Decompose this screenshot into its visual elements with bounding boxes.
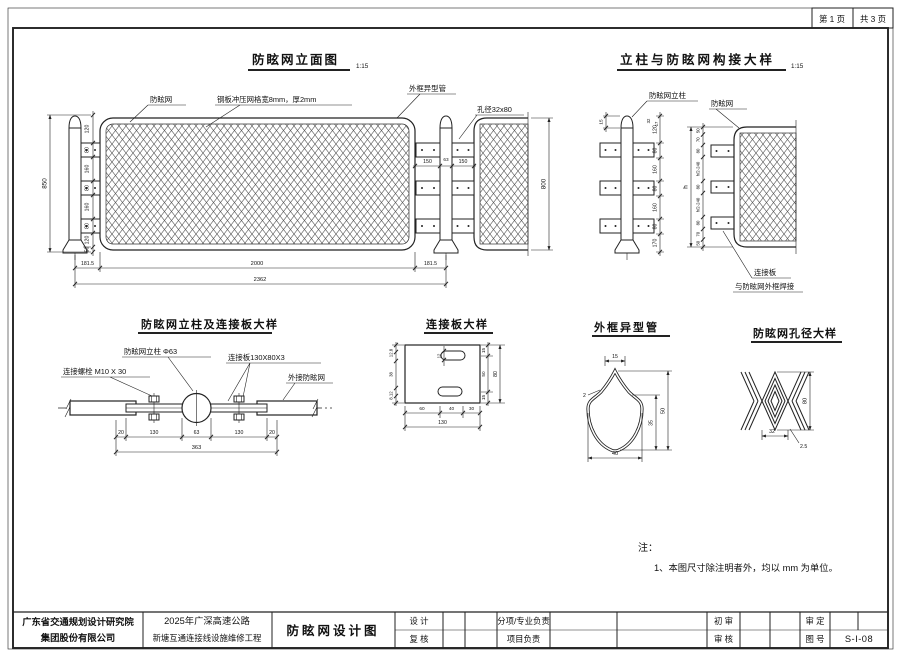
- dim-label: 80: [85, 185, 91, 191]
- aperture-label: 孔径32x80: [477, 105, 512, 114]
- dim-label: 20: [118, 430, 124, 436]
- mesh-spec-label: 钢板冲压网格宽8mm，厚2mm: [217, 95, 316, 104]
- view-scale: 1:15: [791, 63, 804, 70]
- dim-label: 170: [653, 239, 659, 248]
- dim-label: 60: [419, 406, 425, 411]
- leader-line: [397, 94, 456, 118]
- dim-label: 40: [449, 406, 455, 411]
- dim-label: 20: [269, 430, 275, 436]
- joint-detail-view: 立柱与防眩网构接大样 1:15 防眩网立柱 防眩网 15 32 17 120 8…: [599, 52, 804, 292]
- dim-label: 12.8: [389, 348, 394, 357]
- project-lead-label: 项目负责: [507, 634, 541, 644]
- dim-label: 80: [493, 371, 499, 377]
- title-block: 广东省交通规划设计研究院 集团股份有限公司 2025年广深高速公路 新塘互通连接…: [13, 612, 888, 648]
- dim-label: 80: [803, 398, 809, 404]
- dim-label: h: [683, 185, 690, 189]
- dim-label: 50: [481, 371, 486, 377]
- dim-label: 160: [653, 203, 659, 212]
- extension-lines: [762, 430, 788, 440]
- leader-line: [226, 363, 321, 401]
- frame-tube-label: 外框异型管: [409, 84, 446, 93]
- check-label: 复 核: [409, 634, 429, 644]
- leader-line: [632, 101, 698, 117]
- brackets: [600, 143, 734, 233]
- leader-line: [709, 109, 747, 128]
- dim-label: 2362: [254, 277, 267, 283]
- dim-label: 50: [696, 128, 701, 133]
- dim-label: 2: [583, 393, 586, 399]
- dim-label: 15: [481, 395, 486, 401]
- bottom-dims: 60 40 30 130: [403, 406, 482, 431]
- net-label: 防眩网: [150, 95, 172, 104]
- net-panel-mesh: [106, 124, 409, 244]
- dim-label: h/2-240: [696, 197, 701, 212]
- dim-label: 50: [696, 240, 701, 245]
- dim-label: 80: [696, 148, 701, 153]
- drawing-number: S-I-08: [845, 634, 873, 644]
- dim-label: 120: [653, 125, 659, 134]
- dim-label: 130: [438, 420, 447, 426]
- plate-detail-view: 连接板大样 12 15 50 15 80 12.8 38 8.12 60 40 …: [389, 317, 506, 431]
- tube-section-outline: [588, 371, 642, 451]
- drawing-no-label: 图 号: [805, 634, 824, 644]
- dim-label: 32: [646, 118, 651, 123]
- leader-line: [283, 383, 333, 400]
- dim-label: 80: [85, 223, 91, 229]
- tube-detail-view: 外框异型管 15 2 50 35 40: [583, 320, 672, 462]
- dim-label: 130: [150, 430, 159, 436]
- dim-label: 15: [481, 348, 486, 354]
- dim-label: 160: [85, 203, 91, 212]
- dim-label: 15: [612, 354, 618, 360]
- left-dims: 12.8 38 8.12: [389, 342, 405, 406]
- discipline-lead-label: 分项/专业负责: [497, 616, 550, 626]
- dim-label: 80: [653, 148, 659, 154]
- cad-canvas: 第 1 页 共 3 页 防眩网立面图 1:15 防眩网 钢板冲压网格宽8mm，厚…: [0, 0, 900, 656]
- cap-dim: 15: [599, 112, 621, 132]
- leader-line: [130, 105, 186, 122]
- mesh-motif: [741, 372, 809, 430]
- dim-label: 70: [696, 137, 701, 142]
- post-label: 防眩网立柱: [649, 91, 687, 100]
- leader-line: [790, 429, 799, 443]
- dim-label: 2000: [251, 261, 264, 267]
- company-name-line2: 集团股份有限公司: [40, 632, 115, 643]
- dim-label: 32: [769, 429, 775, 435]
- view-title: 外框异型管: [593, 320, 659, 334]
- dim-label: 80: [85, 147, 91, 153]
- bolt-label: 连接螺栓 M10 X 30: [63, 367, 126, 376]
- dim-label: 181.5: [424, 261, 437, 267]
- dim-label: 70: [696, 231, 701, 236]
- net-label: 防眩网: [711, 99, 733, 108]
- view-title: 防眩网立柱及连接板大样: [141, 317, 279, 331]
- panel-height-dim: 800: [531, 118, 553, 250]
- page-number: 第 1 页: [819, 14, 845, 24]
- dim-label: 800: [541, 178, 548, 189]
- dim-label: 130: [235, 430, 244, 436]
- dim-label: 181.5: [81, 261, 94, 267]
- design-label: 设 计: [409, 616, 429, 626]
- approval-label: 审 定: [805, 616, 825, 626]
- view-title: 防眩网孔径大样: [753, 326, 837, 340]
- dim-label: 80: [653, 224, 659, 230]
- dim-label: 120: [85, 125, 91, 134]
- elevation-view: 防眩网立面图 1:15 防眩网 钢板冲压网格宽8mm，厚2mm 外框异型管 孔径…: [42, 52, 554, 288]
- net-panel2-mesh: [480, 124, 528, 244]
- dim-label: 50: [661, 408, 667, 414]
- net-label: 外接防眩网: [288, 373, 325, 382]
- dim-label: 120: [85, 236, 91, 245]
- page-number-box: 第 1 页 共 3 页: [812, 8, 893, 28]
- notes: 注： 1、本图尺寸除注明者外，均以 mm 为单位。: [638, 541, 838, 573]
- review-label: 审 核: [714, 634, 734, 644]
- company-name-line1: 广东省交通规划设计研究院: [22, 616, 134, 627]
- weld-label: 与防眩网外框焊接: [735, 282, 795, 291]
- aperture-detail-view: 防眩网孔径大样 80 32 2.5: [741, 326, 842, 450]
- note-item: 1、本图尺寸除注明者外，均以 mm 为单位。: [654, 562, 838, 573]
- bottom-dims: 181.5 2000 181.5 2362: [73, 252, 448, 288]
- note-head: 注：: [638, 541, 658, 554]
- post-plate-detail-view: 防眩网立柱及连接板大样 连接螺栓 M10 X 30 防眩网立柱 Φ63 连接板1…: [58, 317, 333, 456]
- post-label: 防眩网立柱 Φ63: [124, 347, 177, 356]
- drawing-title: 防眩网设计图: [286, 623, 379, 638]
- dim-label: 35: [649, 420, 655, 426]
- dim-label: 160: [85, 165, 91, 174]
- project-name-line1: 2025年广深高速公路: [164, 615, 250, 626]
- dim-label: 160: [653, 165, 659, 174]
- project-name-line2: 新塘互通连接线设施维修工程: [153, 633, 262, 643]
- drawing-sheet: 第 1 页 共 3 页 防眩网立面图 1:15 防眩网 钢板冲压网格宽8mm，厚…: [0, 0, 900, 656]
- dim-label: 12: [437, 353, 442, 358]
- dim-label: 38: [389, 372, 394, 377]
- dim-label: 363: [192, 445, 202, 451]
- dim-label: 50: [85, 247, 91, 253]
- dim-label: 30: [469, 406, 475, 411]
- plate-outline: [405, 345, 480, 403]
- page-total: 共 3 页: [860, 14, 886, 24]
- dim-label: 150: [423, 159, 432, 165]
- dim-label: 63: [443, 157, 449, 162]
- dim-label: 15: [599, 119, 604, 125]
- initial-review-label: 初 审: [714, 616, 733, 626]
- plate-label: 连接板130X80X3: [228, 353, 285, 362]
- view-scale: 1:15: [356, 63, 369, 70]
- dim-label: h/2-240: [696, 161, 701, 176]
- dim-label: 40: [612, 451, 618, 457]
- dim-label: 2.5: [800, 444, 807, 450]
- dim-label: 80: [696, 220, 701, 225]
- view-title: 立柱与防眩网构接大样: [620, 52, 775, 67]
- dim-label: 150: [459, 159, 468, 165]
- dim-label: 80: [653, 186, 659, 192]
- view-title: 连接板大样: [426, 317, 489, 331]
- net-panel-mesh: [740, 133, 796, 241]
- dim-label: 63: [194, 430, 200, 436]
- leader-line: [122, 357, 211, 391]
- dim-label: 80: [696, 184, 701, 189]
- dim-label: 850: [42, 178, 49, 189]
- view-title: 防眩网立面图: [252, 52, 339, 67]
- plate-label: 连接板: [754, 268, 777, 277]
- right-dims: 15 50 15 80: [481, 342, 505, 406]
- dim-label: 8.12: [389, 391, 394, 400]
- leader-line: [61, 377, 152, 396]
